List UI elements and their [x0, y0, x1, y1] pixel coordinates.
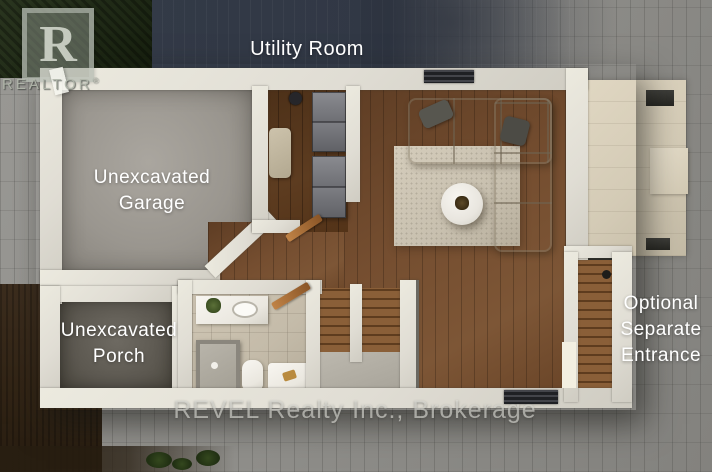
window-top: [424, 70, 474, 83]
realtor-text: REALTOR: [2, 76, 92, 93]
door-mat: [646, 90, 674, 106]
entrance-staircase-steps: [578, 260, 612, 390]
toilet: [242, 360, 263, 391]
label-porch-line1: Unexcavated: [39, 318, 199, 344]
realtor-logo-letter: R: [39, 19, 77, 71]
bush: [172, 458, 192, 470]
label-separate-entrance: Optional Separate Entrance: [610, 291, 712, 369]
stair-center-rail: [350, 284, 362, 362]
patio-vent: [646, 238, 670, 250]
storage-bench: [269, 128, 291, 178]
realtor-watermark-text: REALTOR®: [2, 76, 98, 93]
realtor-watermark: R REALTOR®: [14, 6, 144, 106]
wall-right-upper: [566, 68, 588, 260]
shower-head: [211, 362, 218, 369]
wall-stair-right: [400, 280, 419, 402]
label-entrance-line3: Entrance: [610, 343, 712, 369]
label-utility-room-text: Utility Room: [250, 38, 364, 60]
table-plant: [455, 196, 469, 210]
wall-garage-utility-divider: [252, 86, 268, 232]
label-utility-room: Utility Room: [227, 36, 387, 62]
wall-bathroom-right: [306, 280, 320, 402]
furnace-appliance: [312, 92, 346, 152]
vanity-plant: [206, 298, 221, 313]
patio-slab: [650, 148, 688, 194]
wall-utility-living-divider: [346, 86, 360, 202]
label-porch: Unexcavated Porch: [39, 318, 199, 370]
label-entrance-line1: Optional: [610, 291, 712, 317]
bush: [146, 452, 172, 468]
brokerage-watermark-text: REVEL Realty Inc., Brokerage: [173, 396, 536, 424]
label-entrance-line2: Separate: [610, 317, 712, 343]
label-garage-line2: Garage: [62, 191, 242, 217]
sink: [232, 301, 258, 318]
stair-light: [602, 270, 611, 279]
brokerage-watermark: REVEL Realty Inc., Brokerage: [130, 396, 580, 425]
label-garage: Unexcavated Garage: [62, 165, 242, 217]
label-porch-line2: Porch: [39, 344, 199, 370]
bush: [196, 450, 220, 466]
wall-porch-top: [40, 286, 188, 302]
floor-drain: [289, 92, 302, 105]
floorplan-render: Utility Room Unexcavated Garage Unexcava…: [0, 0, 712, 472]
registered-symbol: ®: [92, 76, 98, 85]
label-garage-line1: Unexcavated: [62, 165, 242, 191]
wall-lit-segment: [562, 342, 576, 388]
water-heater-appliance: [312, 156, 346, 218]
